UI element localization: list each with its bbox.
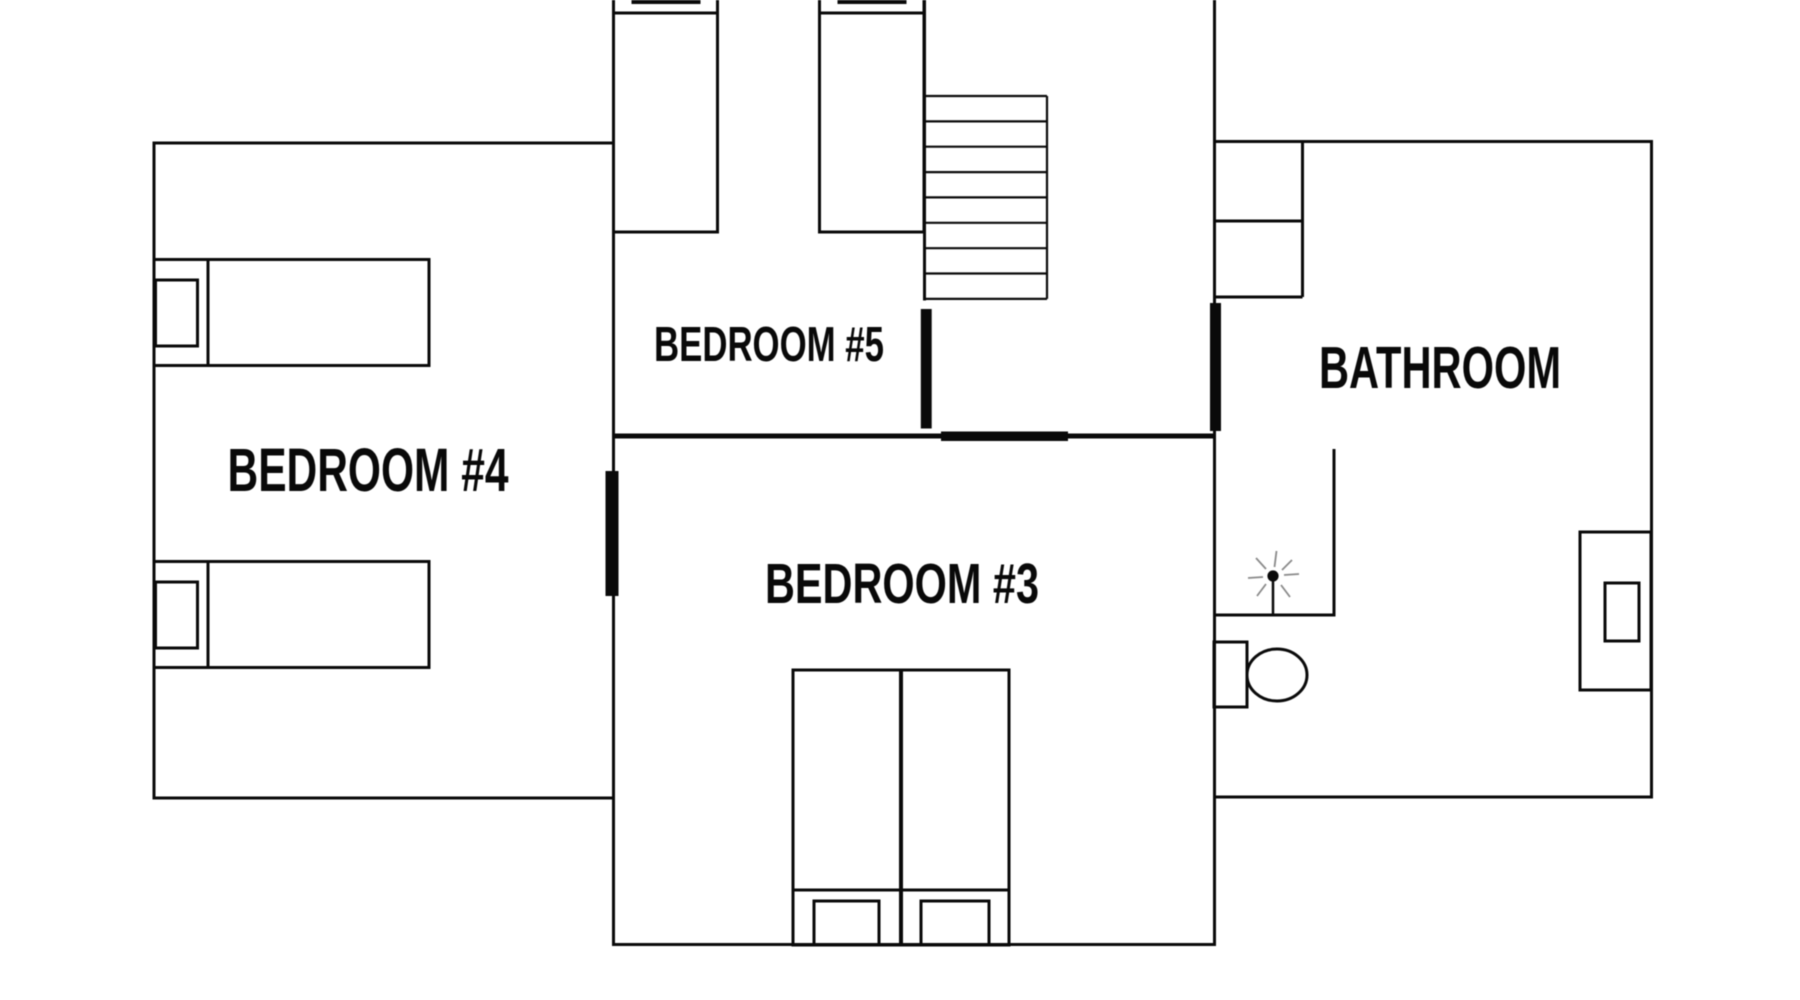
svg-text:BEDROOM #5: BEDROOM #5: [654, 317, 884, 372]
svg-text:BATHROOM: BATHROOM: [1319, 334, 1561, 401]
svg-text:BEDROOM #3: BEDROOM #3: [765, 552, 1039, 615]
svg-text:BEDROOM #4: BEDROOM #4: [228, 436, 509, 504]
